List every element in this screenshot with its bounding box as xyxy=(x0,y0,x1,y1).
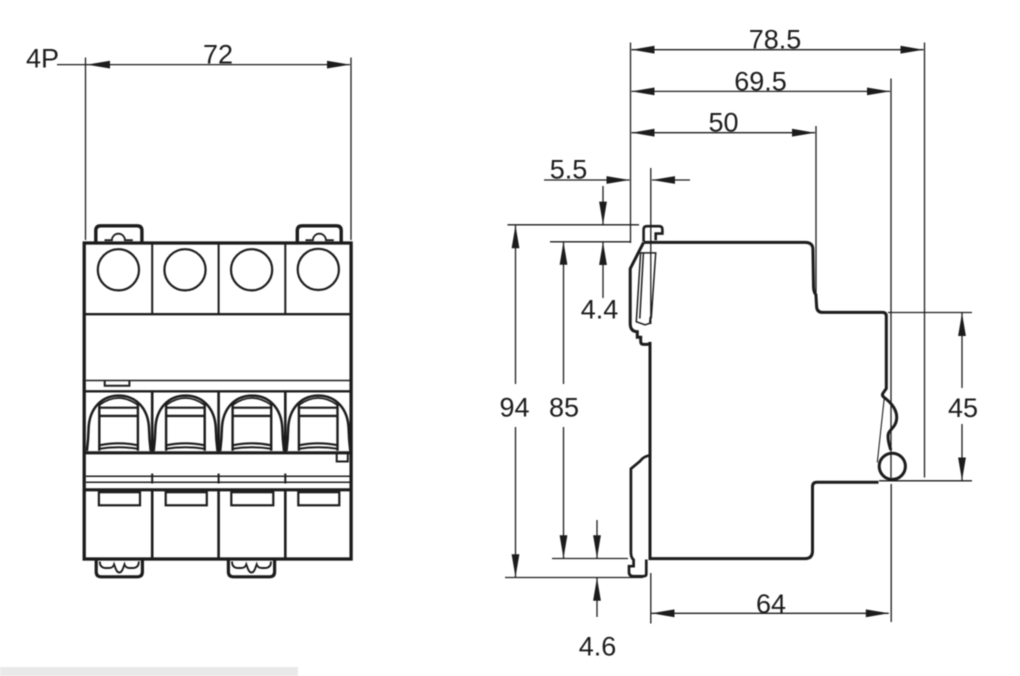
svg-text:4.6: 4.6 xyxy=(579,632,617,662)
svg-text:94: 94 xyxy=(499,393,529,423)
svg-text:69.5: 69.5 xyxy=(734,67,787,97)
svg-text:50: 50 xyxy=(708,108,738,138)
svg-text:5.5: 5.5 xyxy=(550,155,588,185)
svg-text:78.5: 78.5 xyxy=(749,25,802,55)
svg-text:72: 72 xyxy=(203,40,233,70)
svg-text:45: 45 xyxy=(948,393,978,423)
svg-text:4P: 4P xyxy=(26,44,59,74)
svg-text:4.4: 4.4 xyxy=(581,295,619,325)
svg-text:85: 85 xyxy=(549,393,579,423)
svg-text:64: 64 xyxy=(756,589,786,619)
